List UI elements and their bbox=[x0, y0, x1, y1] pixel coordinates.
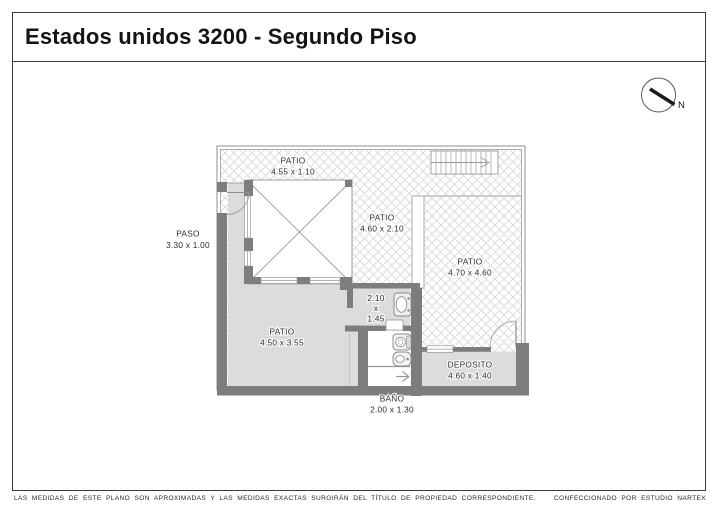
toilet bbox=[393, 334, 411, 350]
right-wall bbox=[516, 343, 529, 395]
sink bbox=[394, 293, 411, 316]
footer: LAS MEDIDAS DE ESTE PLANO SON APROXIMADA… bbox=[14, 495, 706, 502]
room-label-bano: BAÑO2.00 x 1.30 bbox=[370, 394, 414, 415]
bidet bbox=[393, 352, 411, 366]
toilette-shelf bbox=[386, 320, 403, 330]
left-wall bbox=[217, 213, 227, 390]
room-label-deposito: DEPOSITO4.60 x 1.40 bbox=[448, 360, 493, 381]
floor-plan: PATIO4.55 x 1.10 PASO3.30 x 1.00 PATIO4.… bbox=[166, 146, 529, 415]
bottom-wall bbox=[217, 386, 529, 396]
room-label-paso: PASO3.30 x 1.00 bbox=[166, 229, 210, 251]
floor-plan-page: Estados unidos 3200 - Segundo Piso bbox=[0, 0, 720, 509]
footer-credit: CONFECCIONADO POR ESTUDIO NARTEX bbox=[554, 495, 706, 502]
floor-plan-drawing: PATIO4.55 x 1.10 PASO3.30 x 1.00 PATIO4.… bbox=[0, 0, 720, 509]
entry-door-jamb bbox=[217, 182, 227, 192]
patio-divider bbox=[412, 196, 424, 288]
bath-right-wall bbox=[411, 288, 422, 396]
compass-north-label: N bbox=[678, 100, 685, 111]
light-shaft bbox=[244, 180, 352, 290]
stairs bbox=[431, 151, 498, 174]
footer-disclaimer: LAS MEDIDAS DE ESTE PLANO SON APROXIMADA… bbox=[14, 495, 536, 502]
compass: N bbox=[642, 78, 686, 112]
